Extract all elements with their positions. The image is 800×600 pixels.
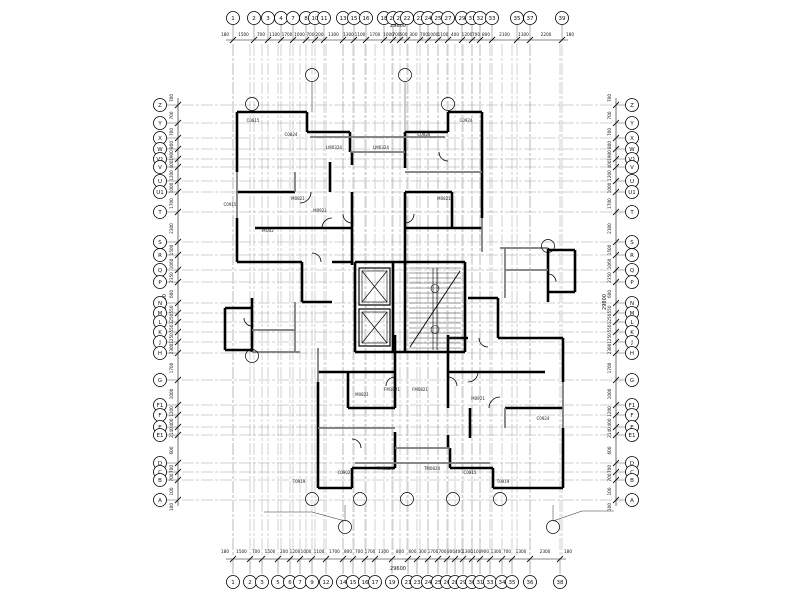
svg-text:25: 25 <box>435 16 442 22</box>
svg-text:B: B <box>630 478 634 484</box>
svg-text:16: 16 <box>362 580 369 586</box>
svg-text:F: F <box>158 413 161 419</box>
svg-text:TM0824: TM0824 <box>423 466 441 471</box>
svg-text:U: U <box>630 179 634 185</box>
svg-text:1700: 1700 <box>169 198 174 209</box>
svg-text:1700: 1700 <box>607 198 612 209</box>
svg-text:1700: 1700 <box>365 549 376 554</box>
svg-text:15: 15 <box>350 580 357 586</box>
svg-text:7: 7 <box>291 16 295 22</box>
svg-text:34: 34 <box>499 580 506 586</box>
svg-text:600: 600 <box>400 32 408 37</box>
svg-text:1100: 1100 <box>314 549 325 554</box>
svg-text:700: 700 <box>169 465 174 473</box>
svg-text:24: 24 <box>425 16 432 22</box>
svg-text:100: 100 <box>169 503 174 511</box>
svg-text:1700: 1700 <box>607 362 612 373</box>
svg-text:700: 700 <box>169 111 174 119</box>
svg-text:22: 22 <box>404 16 411 22</box>
svg-text:1700: 1700 <box>428 549 439 554</box>
svg-text:C0924: C0924 <box>537 416 550 421</box>
svg-text:700: 700 <box>607 473 612 481</box>
svg-text:1000: 1000 <box>169 388 174 399</box>
svg-text:1300: 1300 <box>378 549 389 554</box>
svg-text:600: 600 <box>169 290 174 298</box>
svg-text:550: 550 <box>169 305 174 313</box>
svg-text:700: 700 <box>355 549 363 554</box>
svg-text:1100: 1100 <box>471 549 482 554</box>
svg-text:1200: 1200 <box>290 549 301 554</box>
svg-text:32: 32 <box>477 16 484 22</box>
svg-text:3: 3 <box>266 16 270 22</box>
svg-text:15: 15 <box>351 16 358 22</box>
svg-text:1500: 1500 <box>238 32 249 37</box>
svg-text:X: X <box>158 136 162 142</box>
svg-text:1300: 1300 <box>343 32 354 37</box>
svg-text:B: B <box>158 478 162 484</box>
svg-text:180: 180 <box>221 32 229 37</box>
svg-text:Q: Q <box>630 268 635 274</box>
svg-text:400: 400 <box>169 160 174 168</box>
svg-text:700: 700 <box>503 549 511 554</box>
svg-text:K: K <box>630 330 634 336</box>
drawing-sheet: 1500700110017001000700200130013001100170… <box>0 0 800 600</box>
svg-text:35: 35 <box>514 16 521 22</box>
svg-text:V: V <box>158 165 162 171</box>
svg-text:1060: 1060 <box>607 258 612 269</box>
svg-text:6: 6 <box>288 580 292 586</box>
svg-text:1000: 1000 <box>294 32 305 37</box>
svg-text:1250: 1250 <box>607 333 612 344</box>
svg-text:3: 3 <box>260 580 264 586</box>
svg-text:29600: 29600 <box>390 566 406 572</box>
svg-text:U: U <box>158 179 162 185</box>
svg-text:300: 300 <box>419 549 427 554</box>
svg-text:700: 700 <box>257 32 265 37</box>
svg-text:Z: Z <box>630 103 634 109</box>
svg-text:16: 16 <box>363 16 370 22</box>
svg-text:H: H <box>630 351 634 357</box>
svg-text:1100: 1100 <box>269 32 280 37</box>
svg-text:36: 36 <box>527 580 534 586</box>
svg-text:35: 35 <box>509 580 516 586</box>
svg-text:800: 800 <box>396 549 404 554</box>
svg-text:1000: 1000 <box>169 182 174 193</box>
svg-text:E1: E1 <box>157 433 164 439</box>
svg-text:37: 37 <box>527 16 534 22</box>
svg-text:T: T <box>629 210 634 216</box>
svg-text:1300: 1300 <box>328 32 339 37</box>
svg-text:1700: 1700 <box>370 32 381 37</box>
svg-text:2140: 2140 <box>169 427 174 438</box>
svg-text:1000: 1000 <box>607 388 612 399</box>
svg-text:M0821: M0821 <box>437 196 451 201</box>
svg-text:7: 7 <box>298 580 302 586</box>
svg-text:17: 17 <box>372 580 379 586</box>
svg-text:1000: 1000 <box>301 549 312 554</box>
svg-text:FM1021: FM1021 <box>384 387 400 392</box>
svg-text:1700: 1700 <box>282 32 293 37</box>
svg-text:31: 31 <box>477 580 484 586</box>
svg-text:2300: 2300 <box>540 549 551 554</box>
svg-text:J: J <box>630 340 633 346</box>
svg-text:2100: 2100 <box>499 32 510 37</box>
svg-text:38: 38 <box>557 580 564 586</box>
svg-text:12: 12 <box>323 580 330 586</box>
svg-text:U1: U1 <box>628 190 636 196</box>
svg-text:14: 14 <box>340 580 347 586</box>
svg-text:G: G <box>158 378 162 384</box>
svg-text:S: S <box>158 240 162 246</box>
leader-lines <box>264 511 614 521</box>
svg-text:800: 800 <box>482 32 490 37</box>
svg-text:E1: E1 <box>629 433 636 439</box>
svg-text:29800: 29800 <box>602 294 608 310</box>
floorplan-canvas: 1500700110017001000700200130013001100170… <box>0 0 800 600</box>
svg-text:Q: Q <box>158 268 163 274</box>
svg-text:1300: 1300 <box>516 549 527 554</box>
svg-text:1200: 1200 <box>607 170 612 181</box>
svg-text:U1: U1 <box>156 190 164 196</box>
svg-text:1500: 1500 <box>265 549 276 554</box>
svg-text:2140: 2140 <box>607 427 612 438</box>
svg-text:TM0824: TM0824 <box>376 466 394 471</box>
svg-text:700: 700 <box>439 549 447 554</box>
svg-text:T0919: T0919 <box>496 479 510 484</box>
svg-text:1200: 1200 <box>169 170 174 181</box>
svg-text:700: 700 <box>607 94 612 102</box>
svg-text:1900: 1900 <box>169 150 174 161</box>
svg-text:C0824: C0824 <box>418 132 431 137</box>
svg-text:19: 19 <box>389 580 396 586</box>
svg-text:100: 100 <box>607 503 612 511</box>
svg-text:1100: 1100 <box>438 32 449 37</box>
svg-text:300: 300 <box>410 32 418 37</box>
svg-text:1300: 1300 <box>518 32 529 37</box>
svg-text:X: X <box>630 136 634 142</box>
svg-text:C0902: C0902 <box>338 470 351 475</box>
svg-text:1900: 1900 <box>607 150 612 161</box>
svg-text:1: 1 <box>231 16 235 22</box>
svg-text:C0824: C0824 <box>285 132 298 137</box>
svg-text:S: S <box>630 240 634 246</box>
svg-text:13: 13 <box>340 16 347 22</box>
svg-text:11: 11 <box>321 16 328 22</box>
svg-text:C0815: C0815 <box>464 470 477 475</box>
svg-text:23: 23 <box>414 580 421 586</box>
svg-text:400: 400 <box>169 418 174 426</box>
svg-text:2300: 2300 <box>169 223 174 234</box>
svg-text:700: 700 <box>169 94 174 102</box>
svg-text:1200: 1200 <box>462 32 473 37</box>
svg-text:2: 2 <box>248 580 252 586</box>
svg-text:Y: Y <box>157 121 162 127</box>
svg-text:M0821: M0821 <box>291 196 305 201</box>
svg-text:M0921: M0921 <box>313 208 327 213</box>
svg-text:800: 800 <box>169 141 174 149</box>
svg-text:550: 550 <box>169 324 174 332</box>
svg-text:1250: 1250 <box>169 333 174 344</box>
svg-text:G: G <box>630 378 634 384</box>
svg-text:600: 600 <box>169 446 174 454</box>
svg-text:4: 4 <box>279 16 283 22</box>
svg-text:700: 700 <box>307 32 315 37</box>
svg-text:700: 700 <box>252 549 260 554</box>
walls-unit-b <box>318 248 575 488</box>
svg-text:700: 700 <box>607 111 612 119</box>
svg-text:2: 2 <box>252 16 256 22</box>
svg-text:27: 27 <box>445 16 452 22</box>
svg-text:LM0324: LM0324 <box>326 145 342 150</box>
svg-text:700: 700 <box>607 128 612 136</box>
svg-text:550: 550 <box>607 324 612 332</box>
svg-text:V: V <box>630 165 634 171</box>
svg-text:A: A <box>158 498 162 504</box>
svg-text:200: 200 <box>280 549 288 554</box>
svg-text:400: 400 <box>451 32 459 37</box>
svg-text:200: 200 <box>316 32 324 37</box>
svg-text:2300: 2300 <box>607 223 612 234</box>
svg-text:800: 800 <box>607 141 612 149</box>
svg-text:M0921: M0921 <box>471 396 485 401</box>
svg-text:1200: 1200 <box>169 406 174 417</box>
svg-text:C0924: C0924 <box>460 118 473 123</box>
svg-text:180: 180 <box>564 549 572 554</box>
svg-text:1500: 1500 <box>236 549 247 554</box>
svg-text:F: F <box>630 413 633 419</box>
svg-text:MQ02: MQ02 <box>262 228 274 233</box>
svg-text:1060: 1060 <box>169 258 174 269</box>
svg-text:100: 100 <box>607 487 612 495</box>
svg-text:FM0821: FM0821 <box>412 387 428 392</box>
svg-text:2300: 2300 <box>607 343 612 354</box>
svg-text:Y: Y <box>629 121 634 127</box>
svg-text:9: 9 <box>310 580 314 586</box>
svg-text:W: W <box>629 147 635 153</box>
svg-text:1300: 1300 <box>491 549 502 554</box>
svg-text:700: 700 <box>472 32 480 37</box>
svg-text:39: 39 <box>559 16 566 22</box>
svg-text:T0919: T0919 <box>292 479 306 484</box>
svg-text:33: 33 <box>489 16 496 22</box>
svg-text:2350: 2350 <box>169 272 174 283</box>
svg-text:1500: 1500 <box>607 244 612 255</box>
svg-text:1250: 1250 <box>169 313 174 324</box>
svg-text:LM0324: LM0324 <box>373 145 389 150</box>
svg-text:1700: 1700 <box>329 549 340 554</box>
svg-text:400: 400 <box>607 160 612 168</box>
svg-text:J: J <box>158 340 161 346</box>
svg-text:C0915: C0915 <box>224 202 237 207</box>
svg-text:K: K <box>158 330 162 336</box>
svg-text:H: H <box>158 351 162 357</box>
svg-text:600: 600 <box>409 549 417 554</box>
svg-text:700: 700 <box>169 473 174 481</box>
svg-text:1700: 1700 <box>169 362 174 373</box>
svg-text:1250: 1250 <box>607 313 612 324</box>
svg-text:C0815: C0815 <box>247 118 260 123</box>
svg-text:180: 180 <box>566 32 574 37</box>
svg-text:1200: 1200 <box>607 406 612 417</box>
svg-text:2200: 2200 <box>541 32 552 37</box>
svg-text:2350: 2350 <box>607 272 612 283</box>
svg-text:33: 33 <box>487 580 494 586</box>
svg-text:A: A <box>630 498 634 504</box>
svg-text:1: 1 <box>231 580 235 586</box>
svg-text:1100: 1100 <box>355 32 366 37</box>
svg-text:700: 700 <box>607 465 612 473</box>
svg-text:1500: 1500 <box>169 244 174 255</box>
svg-text:900: 900 <box>481 549 489 554</box>
svg-text:Z: Z <box>158 103 162 109</box>
svg-text:100: 100 <box>169 487 174 495</box>
svg-text:T: T <box>157 210 162 216</box>
svg-text:5: 5 <box>276 580 280 586</box>
svg-text:8: 8 <box>304 16 308 22</box>
svg-text:600: 600 <box>607 446 612 454</box>
svg-text:700: 700 <box>169 128 174 136</box>
svg-text:R: R <box>630 253 634 259</box>
axis-bubbles: 1234781011131516182021222324252729313233… <box>154 12 639 589</box>
svg-text:180: 180 <box>221 549 229 554</box>
svg-text:2300: 2300 <box>169 343 174 354</box>
svg-text:800: 800 <box>344 549 352 554</box>
svg-text:M0821: M0821 <box>355 392 369 397</box>
svg-text:29: 29 <box>459 16 466 22</box>
svg-text:1000: 1000 <box>607 182 612 193</box>
svg-text:24: 24 <box>425 580 432 586</box>
svg-text:W: W <box>157 147 163 153</box>
svg-text:R: R <box>158 253 162 259</box>
svg-text:400: 400 <box>607 418 612 426</box>
